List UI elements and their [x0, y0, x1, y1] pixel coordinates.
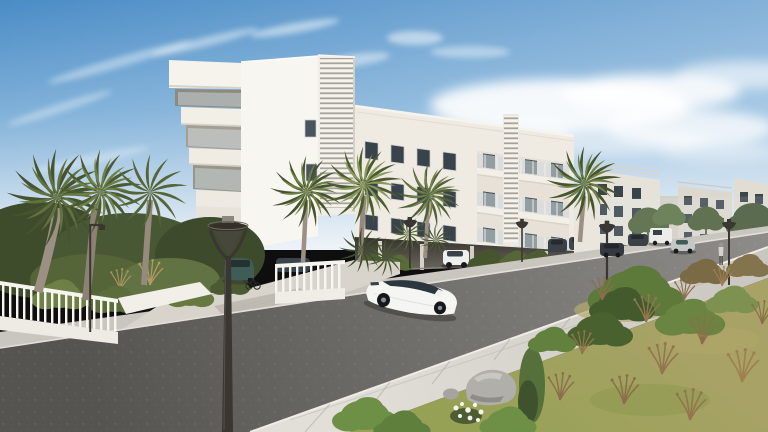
driving-car-distant [670, 240, 696, 255]
architectural-render [0, 0, 768, 432]
parked-sedan-dark [628, 234, 648, 246]
parked-van-white [648, 228, 674, 247]
parked-car-white [441, 250, 471, 269]
side-window [305, 120, 316, 137]
louver-tower-facade [503, 114, 519, 246]
white-railing-fence-right [275, 260, 345, 304]
parked-sedan-dark [600, 243, 624, 257]
louver-tower-near [318, 55, 355, 216]
render-viewport [0, 0, 768, 432]
lamp-disc [208, 223, 248, 232]
